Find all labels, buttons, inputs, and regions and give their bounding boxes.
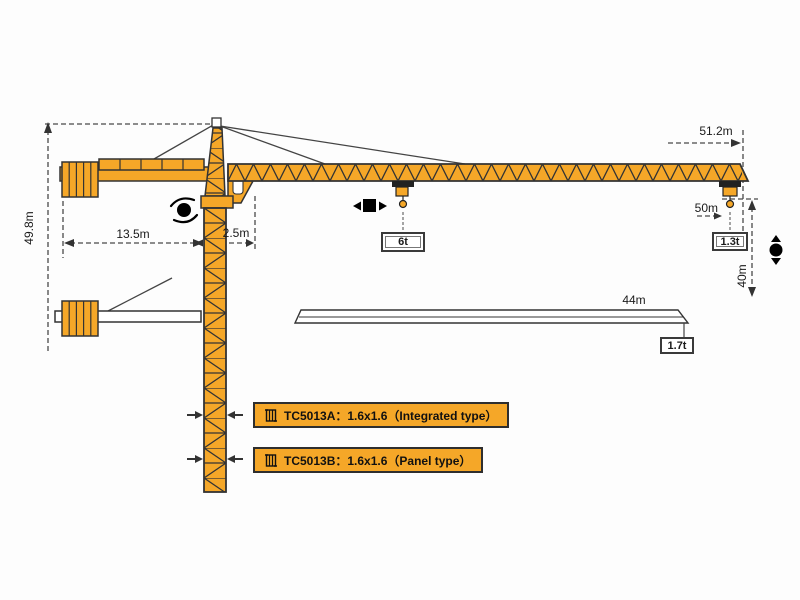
- load-badge-tip-50m: 1.3t: [712, 232, 748, 251]
- model-label-integrated: TC5013A：1.6x1.6（Integrated type）: [253, 402, 509, 428]
- load-badge-mid: 6t: [381, 232, 425, 252]
- crane-drawing: [0, 0, 800, 600]
- mast-section-icon: [265, 453, 277, 468]
- tower-mast: [201, 196, 233, 492]
- ballast-beam-view: [55, 278, 201, 336]
- apex-pin: [212, 118, 221, 127]
- tower-head: [205, 118, 225, 196]
- model-label-panel: TC5013B：1.6x1.6（Panel type）: [253, 447, 483, 473]
- dim-total-height: 49.8m: [22, 206, 36, 250]
- dim-jib-length-50: 50m: [690, 201, 718, 215]
- slewing-icon: [171, 198, 197, 222]
- counter-jib: [60, 159, 213, 197]
- mast-section-icon: [265, 408, 277, 423]
- trolley-tip: [719, 181, 741, 208]
- dim-max-radius: 51.2m: [691, 124, 741, 138]
- crane-spec-diagram: 49.8m 13.5m 2.5m 51.2m 50m 40m 44m 6t 1.…: [0, 0, 800, 600]
- dim-hook-clearance: 40m: [735, 259, 749, 293]
- hook-drop-lines: [403, 212, 730, 231]
- hook-mid: [400, 201, 407, 208]
- dim-jib-length-44: 44m: [614, 293, 654, 307]
- load-badge-tip-44m: 1.7t: [660, 337, 694, 354]
- trolley-travel-icon: [353, 199, 387, 212]
- tie-rods: [147, 124, 465, 164]
- short-jib-44m: [295, 310, 688, 337]
- main-jib: [228, 164, 748, 181]
- hoisting-icon: [770, 235, 783, 265]
- trolley-mid: [392, 181, 414, 208]
- counterweight-block-lower: [62, 301, 98, 336]
- hook-tip: [727, 201, 734, 208]
- slewing-collar: [201, 196, 233, 208]
- model-label-integrated-text: TC5013A：1.6x1.6（Integrated type）: [284, 407, 497, 424]
- dim-jib-root-offset: 2.5m: [216, 226, 256, 240]
- model-label-panel-text: TC5013B：1.6x1.6（Panel type）: [284, 452, 471, 469]
- dim-counter-jib: 13.5m: [108, 227, 158, 241]
- counterweight-block: [62, 162, 98, 197]
